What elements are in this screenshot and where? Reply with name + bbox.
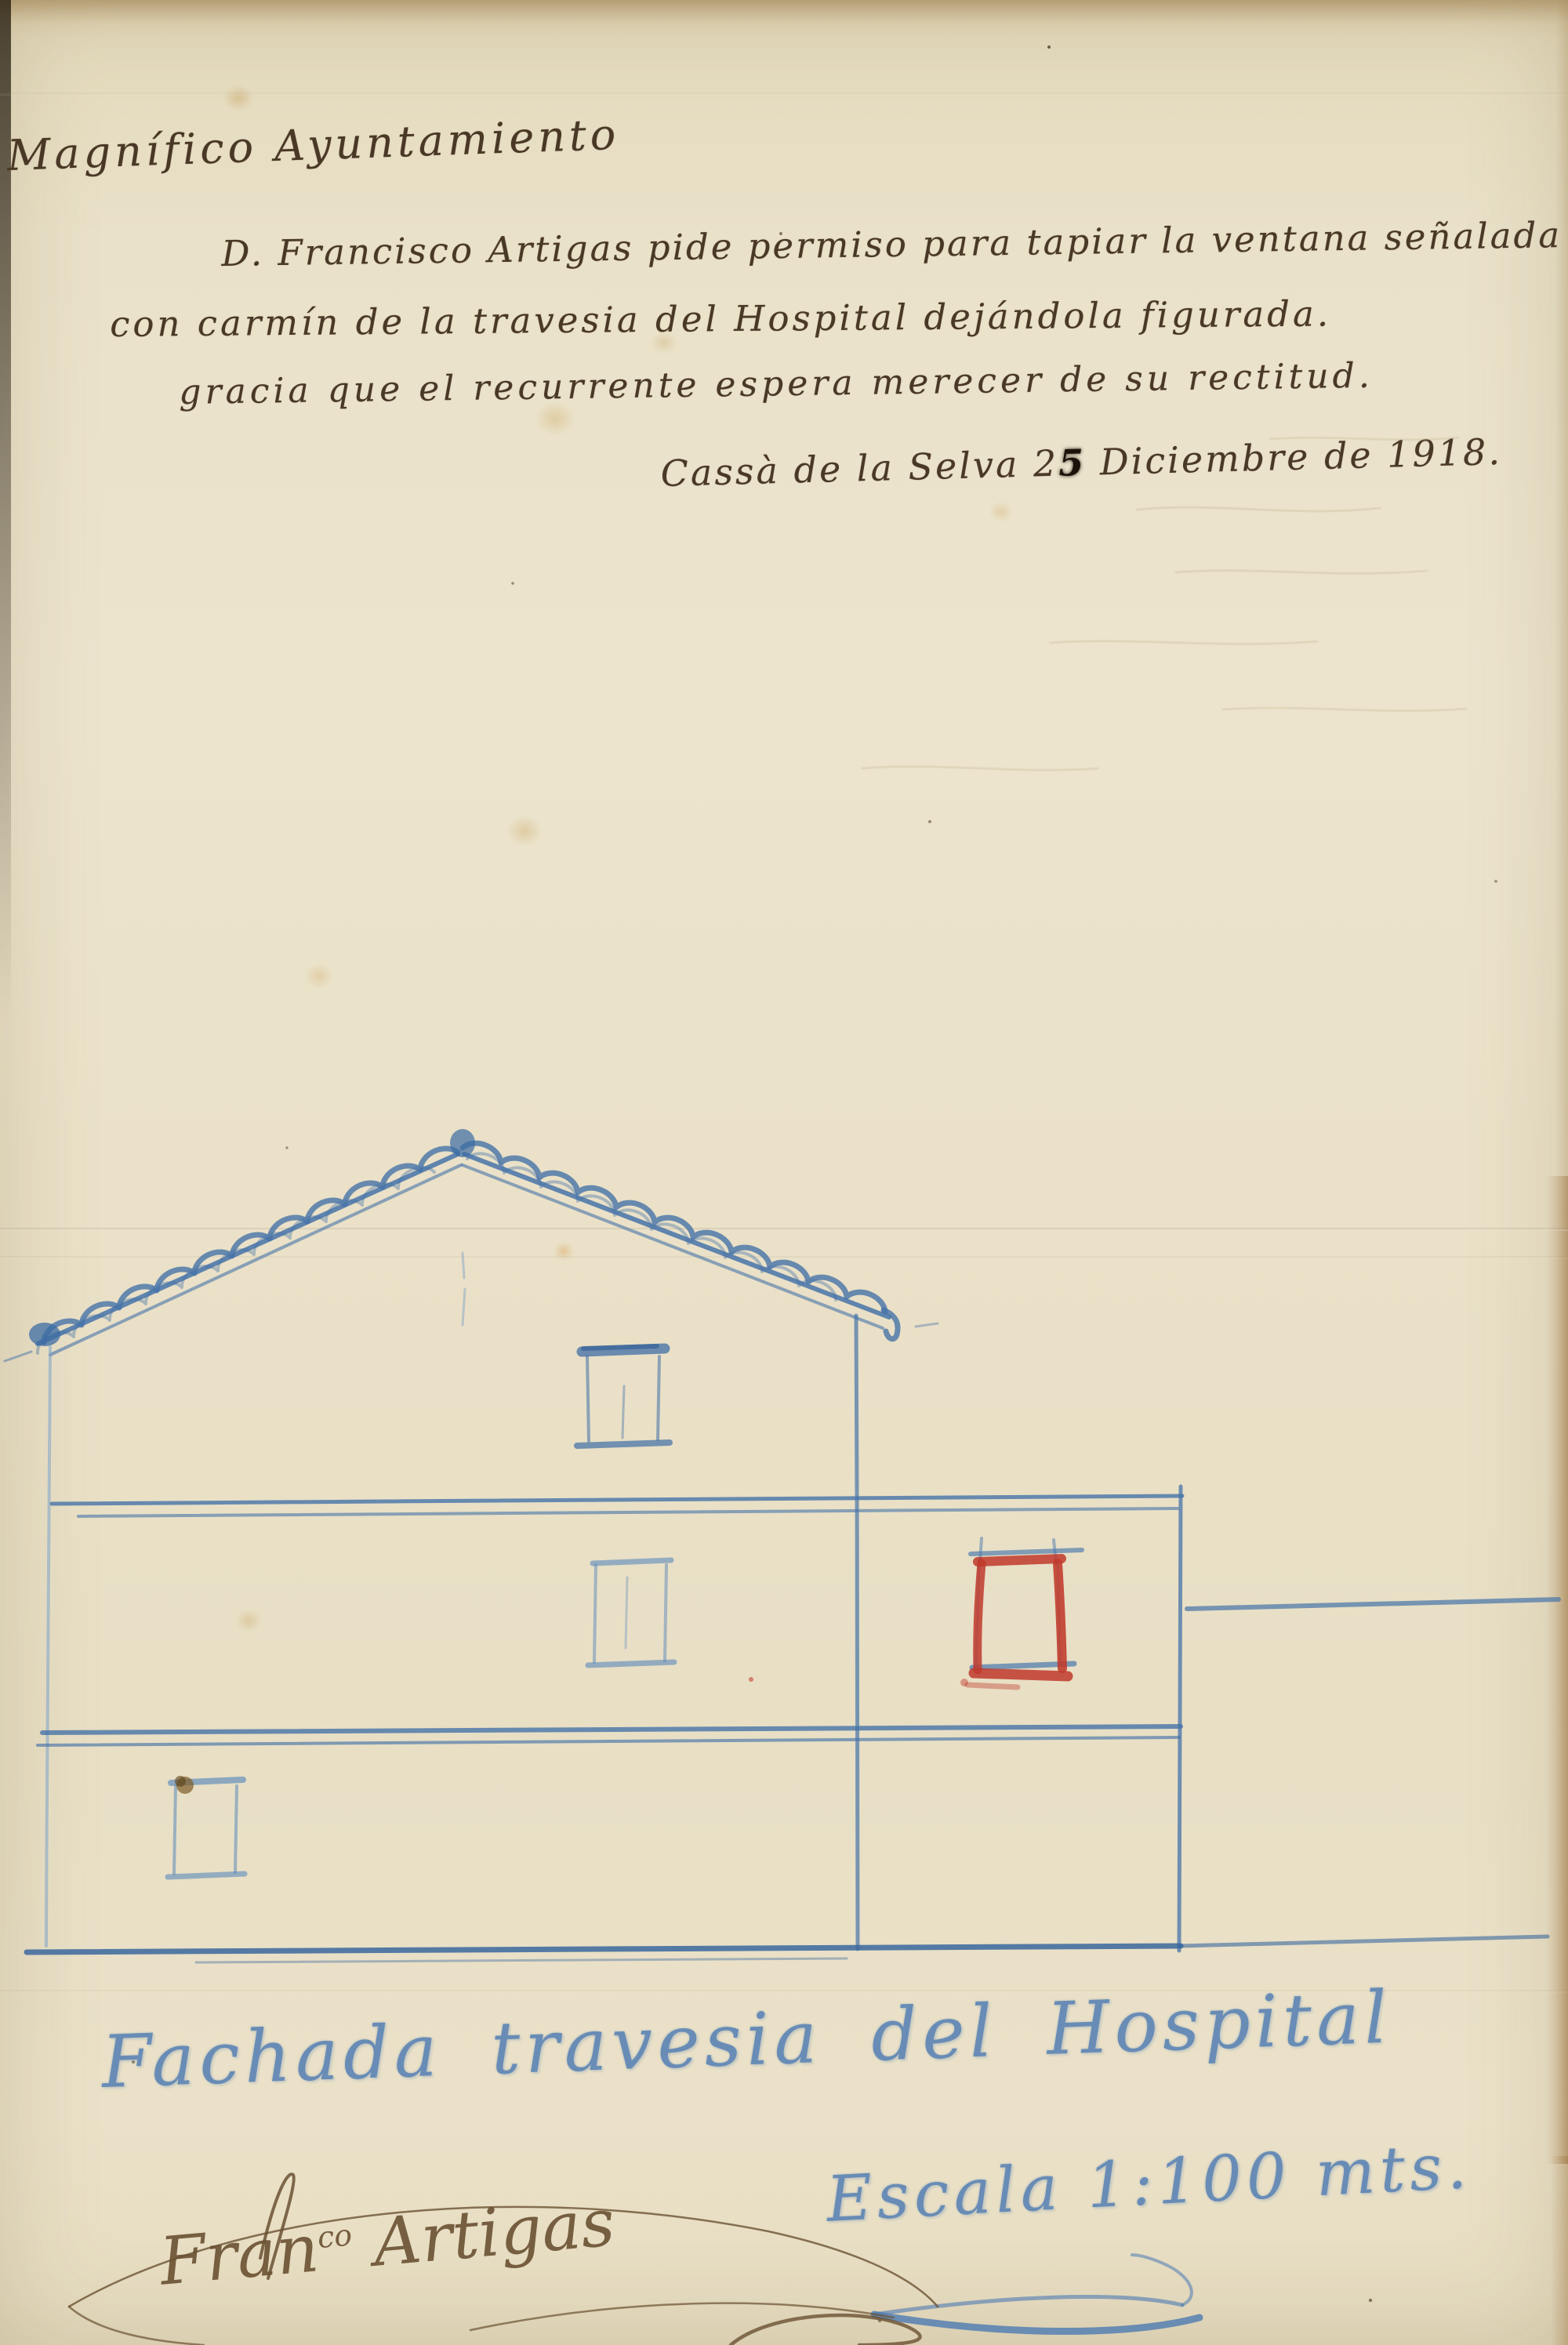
dateline: Cassà de la Selva 25 Diciembre de 1918. [660, 431, 1503, 495]
signature-name-pre: Fran [157, 2209, 321, 2300]
petition-line-3: gracia que el recurrente espera merecer … [179, 357, 1374, 413]
ground-line [27, 1937, 1548, 1962]
petition-line-1: D. Francisco Artigas pide permiso para t… [221, 215, 1562, 274]
page-top-edge-shading [0, 0, 1568, 24]
document-page: Magnífico Ayuntamiento D. Francisco Arti… [0, 0, 1568, 2345]
attic-window [577, 1346, 670, 1446]
scale-note: Escala 1:100 mts. [825, 2132, 1473, 2234]
dateline-text-pre: Cassà de la Selva 2 [660, 442, 1059, 495]
signature-superscript: co [316, 2217, 354, 2255]
marked-window-red [960, 1538, 1082, 1687]
paper-crease [0, 93, 1568, 96]
page-right-edge-shading-lower [1551, 2156, 1568, 2345]
scale-underline-oval [874, 2255, 1200, 2332]
dateline-text-post: Diciembre de 1918. [1085, 430, 1502, 484]
heading-magnifico-ayuntamiento: Magnífico Ayuntamiento [6, 111, 620, 180]
bleed-through-marks [862, 437, 1466, 770]
page-right-edge-shading-upper [1555, 0, 1568, 1176]
facade-walls [46, 1316, 1181, 1951]
paper-crease [0, 1256, 1568, 1259]
second-floor-window [588, 1560, 674, 1665]
signature-francisco-artigas: Franco Artigas [157, 2183, 618, 2300]
signature-name-post: Artigas [350, 2183, 618, 2283]
dateline-ink-blot-digit: 5 [1058, 441, 1086, 485]
roof [5, 1129, 938, 1361]
drawing-caption: Fachada travesia del Hospital [100, 1978, 1393, 2103]
ground-floor-window [168, 1776, 245, 1877]
street-line-right [1187, 1599, 1559, 1609]
petition-line-2: con carmín de la travesia del Hospital d… [110, 293, 1331, 344]
floor-lines [38, 1496, 1182, 1745]
paper-crease [0, 1228, 1568, 1231]
page-right-edge-shading [1546, 1176, 1568, 2164]
